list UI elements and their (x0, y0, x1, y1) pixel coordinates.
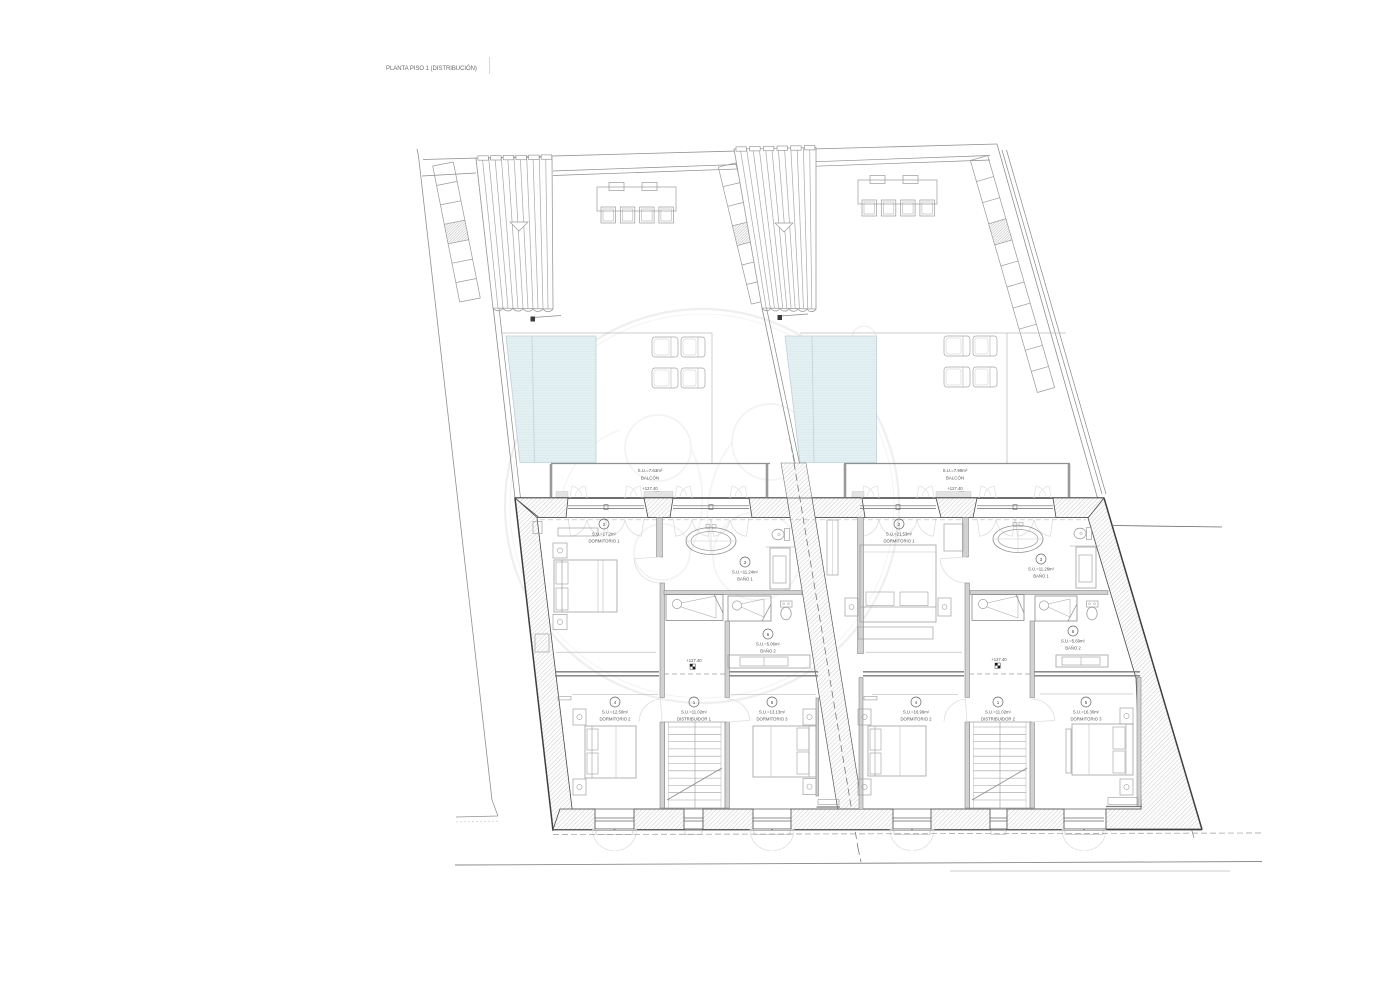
svg-text:DORMITORIO 1: DORMITORIO 1 (588, 539, 620, 544)
svg-text:S.U.=5.06m²: S.U.=5.06m² (756, 642, 781, 647)
svg-text:S.U.=7.63m²: S.U.=7.63m² (638, 468, 663, 473)
svg-text:+127.40: +127.40 (991, 657, 1007, 662)
svg-text:S.U.=12.50m²: S.U.=12.50m² (602, 710, 629, 715)
svg-text:S.U.=17.2m²: S.U.=17.2m² (592, 532, 617, 537)
svg-text:BAÑO 1: BAÑO 1 (1033, 574, 1049, 579)
svg-text:S.U.=21.53m²: S.U.=21.53m² (886, 532, 913, 537)
svg-text:BAÑO 1: BAÑO 1 (737, 577, 753, 582)
svg-text:DORMITORIO 3: DORMITORIO 3 (1070, 717, 1102, 722)
svg-text:DISTRIBUIDOR 2: DISTRIBUIDOR 2 (981, 717, 1016, 722)
svg-text:BAÑO 2: BAÑO 2 (760, 649, 776, 654)
svg-text:S.U.=11.24m²: S.U.=11.24m² (732, 570, 759, 575)
svg-text:DISTRIBUIDOR 1: DISTRIBUIDOR 1 (677, 717, 712, 722)
svg-text:S.U.=11.26m²: S.U.=11.26m² (1028, 567, 1055, 572)
svg-text:DORMITORIO 1: DORMITORIO 1 (883, 539, 915, 544)
svg-text:+127.40: +127.40 (642, 486, 658, 491)
svg-text:BALCÓN: BALCÓN (946, 476, 964, 481)
svg-text:S.U.=5.69m²: S.U.=5.69m² (1061, 639, 1086, 644)
svg-text:DORMITORIO 2: DORMITORIO 2 (900, 717, 932, 722)
svg-text:S.U.=11.02m²: S.U.=11.02m² (681, 710, 708, 715)
svg-text:S.U.=11.02m²: S.U.=11.02m² (985, 710, 1012, 715)
svg-text:BAÑO 2: BAÑO 2 (1065, 646, 1081, 651)
svg-text:+127.40: +127.40 (947, 486, 963, 491)
svg-text:S.U.=16.96m²: S.U.=16.96m² (903, 710, 930, 715)
svg-text:S.U.=13.13m²: S.U.=13.13m² (759, 710, 786, 715)
svg-text:+127.40: +127.40 (686, 658, 702, 663)
svg-text:S.U.=16.30m²: S.U.=16.30m² (1073, 710, 1100, 715)
svg-text:PLANTA PISO 1 (DISTRIBUCIÓN): PLANTA PISO 1 (DISTRIBUCIÓN) (386, 65, 477, 72)
svg-text:DORMITORIO 3: DORMITORIO 3 (756, 717, 788, 722)
svg-text:S.U.=7.99m²: S.U.=7.99m² (943, 468, 968, 473)
svg-text:BALCÓN: BALCÓN (641, 476, 659, 481)
svg-text:DORMITORIO 2: DORMITORIO 2 (599, 717, 631, 722)
